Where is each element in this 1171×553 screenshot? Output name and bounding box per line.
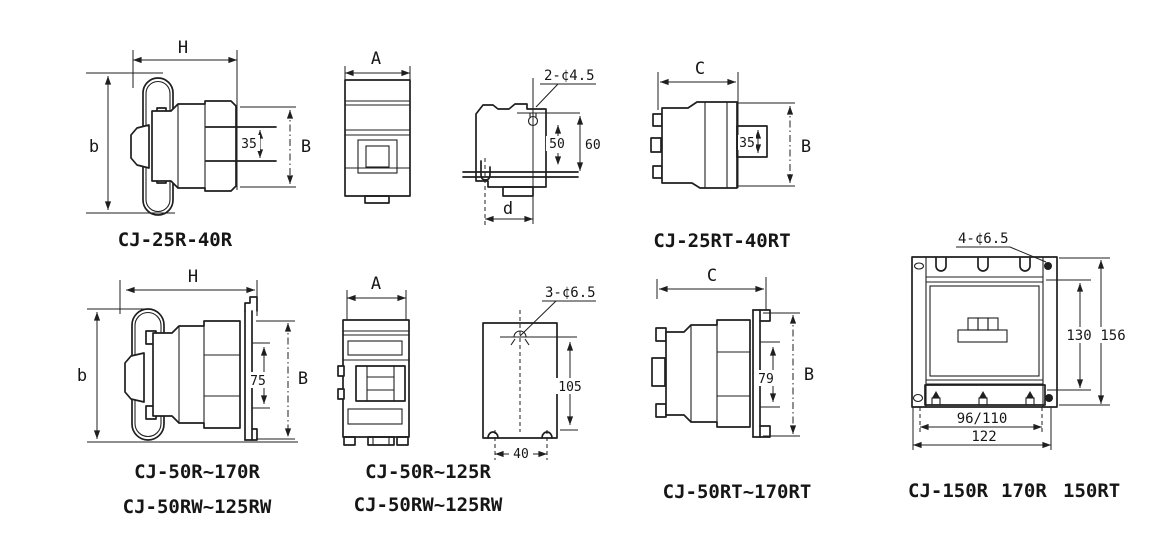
dim-B-label: B [298, 369, 308, 389]
drawing-cj50r-front: A CJ-50R~125R CJ-50RW~125RW [338, 274, 503, 516]
drawing-cj25r-side: H b 35 B CJ-25R-40R [86, 38, 311, 251]
ear-hole-bottom-left [914, 395, 923, 402]
inner-frame [930, 286, 1039, 376]
tab-upper [653, 114, 662, 126]
body-outline [153, 321, 240, 428]
dim-d-label: d [503, 199, 513, 219]
cj50r-front-outline [338, 320, 409, 445]
dim-holes-label: 2-¢4.5 [544, 68, 595, 84]
dim-156-label: 156 [1100, 328, 1125, 344]
bobbin [356, 366, 405, 401]
dim-b-label: b [89, 137, 99, 157]
foot-center [368, 437, 394, 445]
dim-A-label: A [371, 49, 381, 69]
lower-slot [348, 409, 402, 424]
dim-96-110-label: 96/110 [957, 411, 1008, 427]
drawing-cj25r-front: A [345, 49, 410, 203]
cj50r-front-dimensions: A [347, 274, 406, 320]
drawing-cj50r-side: H b 75 B CJ-50R~170R CJ-50RW~125RW [77, 267, 308, 518]
dim-130-label: 130 [1066, 328, 1091, 344]
tab-upper [656, 328, 666, 341]
caption-cj50r-line2: CJ-50RW~125RW [123, 496, 272, 518]
top-slot-3 [1020, 258, 1030, 271]
mounting-hole-top-right [1044, 262, 1052, 270]
cj150-outline [912, 257, 1057, 407]
cj25r-front-outline [345, 80, 410, 203]
bottom-tab [365, 196, 389, 203]
drawing-cj25r-mounting: 2-¢4.5 50 60 d [463, 68, 601, 226]
caption-cj50r-line1: CJ-50R~170R [134, 461, 260, 483]
foot-right [397, 437, 408, 445]
dim-B-label: B [804, 365, 814, 385]
caption-cj150-part3: 150RT [1063, 480, 1120, 502]
caption-cj25r: CJ-25R-40R [118, 229, 233, 251]
cj50r-mounting-outline [483, 310, 577, 438]
rail-plate-bottom-hook [753, 426, 770, 437]
tab-lower [653, 166, 662, 178]
dim-holes-label: 3-¢6.5 [545, 285, 596, 301]
front-body [343, 320, 409, 437]
dim-H-label: H [188, 267, 198, 287]
dim-60-label: 60 [585, 138, 601, 153]
body-outline [662, 102, 737, 188]
dimension-sheet: H b 35 B CJ-25R-40R A [0, 0, 1171, 553]
mounting-hole-bottom-right [1045, 394, 1053, 402]
bottom-terminal-3 [1026, 391, 1034, 398]
tab-mid [652, 358, 665, 386]
rail-plate-top-hook [245, 297, 257, 311]
top-slot-2 [978, 258, 988, 271]
foot-notch-left [488, 432, 498, 438]
dim-rail-label: 35 [739, 136, 755, 151]
caption-cj150-part1: CJ-150R [908, 480, 989, 502]
drawing-cj150-front: 4-¢6.5 130 156 96/110 122 CJ-150R 170R 1… [908, 231, 1130, 502]
cj50r-mounting-dimensions: 3-¢6.5 105 40 [495, 285, 596, 462]
cj50r-side-outline [125, 297, 270, 440]
top-slot-1 [936, 258, 946, 271]
foot-tab [503, 187, 533, 196]
caption-cj25rt: CJ-25RT-40RT [653, 230, 790, 252]
dim-b-label: b [77, 366, 87, 386]
technical-diagram: H b 35 B CJ-25R-40R A [0, 0, 1171, 553]
drawing-cj25rt-side: C 35 B CJ-25RT-40RT [651, 59, 811, 252]
drawing-cj50r-mounting: 3-¢6.5 105 40 [483, 285, 596, 462]
dim-50-label: 50 [549, 137, 565, 152]
dim-rail-label: 79 [758, 372, 774, 387]
dim-122-label: 122 [971, 429, 996, 445]
cj25rt-outline [651, 102, 795, 188]
release-latch [131, 125, 149, 168]
dim-C-label: C [695, 59, 705, 79]
caption-cj50r-front-line2: CJ-50RW~125RW [354, 494, 503, 516]
dim-H-label: H [178, 38, 188, 58]
ear-hole-top-left [915, 263, 924, 269]
dim-rail-label: 35 [241, 137, 257, 152]
tab-lower [656, 404, 666, 417]
side-nub-upper [338, 366, 344, 376]
caption-cj150-part2: 170R [1001, 480, 1047, 502]
body-outline [152, 101, 236, 191]
foot-left [344, 437, 355, 445]
cj25r-front-dimensions: A [345, 49, 410, 88]
drawing-cj50rt-side: C 79 B CJ-50RT~170RT [652, 266, 814, 503]
side-nub-lower [338, 389, 344, 399]
rail-plate-top-hook [753, 310, 770, 321]
caption-cj50rt: CJ-50RT~170RT [663, 481, 812, 503]
rail-plate-bottom-hook [245, 429, 257, 440]
release-latch [125, 353, 144, 402]
upper-slot [348, 341, 402, 355]
dim-105-label: 105 [558, 380, 581, 395]
front-body [345, 80, 410, 196]
dim-B-label: B [801, 137, 811, 157]
dim-B-label: B [301, 137, 311, 157]
tab-mid [651, 138, 661, 152]
dim-40-label: 40 [513, 447, 529, 462]
body-outline [666, 320, 750, 427]
bottom-terminal-1 [932, 391, 940, 398]
dim-A-label: A [371, 274, 381, 294]
bottom-terminal-2 [979, 391, 987, 398]
dim-C-label: C [707, 266, 717, 286]
dim-rail-label: 75 [250, 374, 266, 389]
terminal-block [958, 330, 1007, 342]
dim-holes-label: 4-¢6.5 [958, 231, 1009, 247]
caption-cj50r-front-line1: CJ-50R~125R [365, 461, 491, 483]
